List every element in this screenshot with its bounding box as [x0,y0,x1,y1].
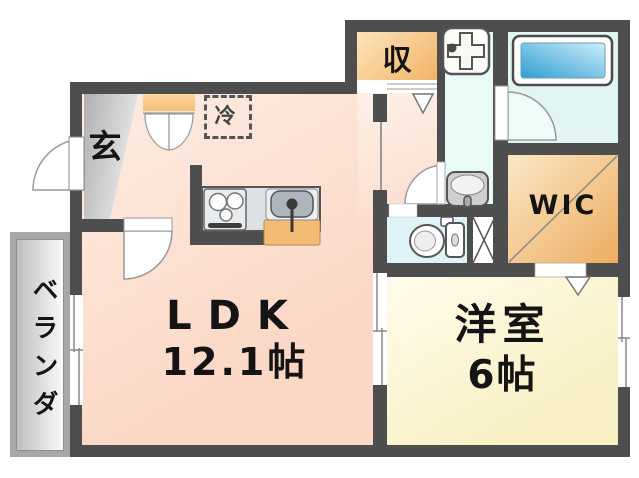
ldk-label: LDK 12.1帖 [106,292,364,386]
bedroom-window-icon [618,297,630,387]
ldk-size: 12.1帖 [106,340,364,386]
shoe-cabinet-doors-icon [143,113,195,150]
entrance-label: 玄 [84,120,126,168]
western-room-name: 洋室 [387,299,618,352]
wic-label: WIC [508,190,618,221]
washing-machine-icon [443,28,489,74]
storage-folding-door-icon [387,84,437,113]
gas-stove-icon [204,189,246,230]
entrance-door-icon [33,137,84,190]
refrigerator-label: 冷 [204,100,246,130]
ldk-door-icon [124,218,172,279]
toilet-icon [410,217,464,257]
kitchen-counter [202,187,320,245]
floor-plan: 玄 収 冷 WIC LDK 12.1帖 洋室 6帖 ベランダ [0,0,639,478]
toilet-door [389,204,417,217]
ldk-bedroom-sliding-door-icon [373,273,387,385]
western-room-size: 6帖 [387,352,618,401]
veranda-label: ベランダ [25,252,62,452]
storage-label: 収 [357,37,437,79]
bathtub-icon [513,36,612,85]
ldk-name: LDK [106,292,364,340]
washbasin-icon [447,172,488,207]
washroom-door-icon [405,162,445,204]
western-room-label: 洋室 6帖 [387,299,618,400]
fixtures-overlay [0,0,639,478]
balcony-window-icon [70,295,83,405]
wic-door-icon [535,263,590,295]
pipe-shaft-icon [473,217,495,263]
bathroom-door-icon [495,86,556,140]
